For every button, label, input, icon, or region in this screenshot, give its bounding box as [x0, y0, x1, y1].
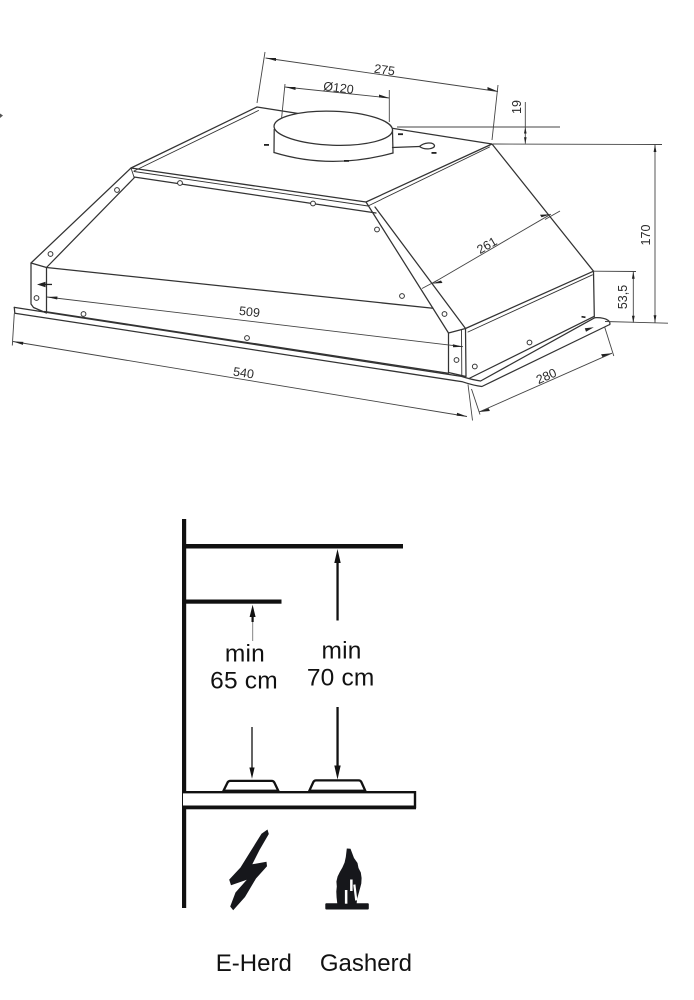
- svg-text:261: 261: [474, 234, 499, 257]
- svg-text:min: min: [225, 641, 265, 668]
- svg-text:275: 275: [373, 62, 396, 79]
- svg-text:Gasherd: Gasherd: [320, 950, 412, 977]
- svg-text:65 cm: 65 cm: [210, 668, 278, 695]
- svg-text:Ø120: Ø120: [322, 79, 354, 97]
- svg-text:19: 19: [510, 100, 524, 114]
- svg-text:540: 540: [232, 365, 255, 382]
- svg-text:280: 280: [534, 366, 559, 387]
- svg-text:70 cm: 70 cm: [307, 665, 375, 692]
- svg-text:min: min: [322, 638, 362, 665]
- svg-text:509: 509: [238, 304, 260, 320]
- svg-text:53,5: 53,5: [616, 285, 630, 309]
- svg-text:170: 170: [639, 225, 653, 246]
- svg-text:E-Herd: E-Herd: [216, 950, 292, 977]
